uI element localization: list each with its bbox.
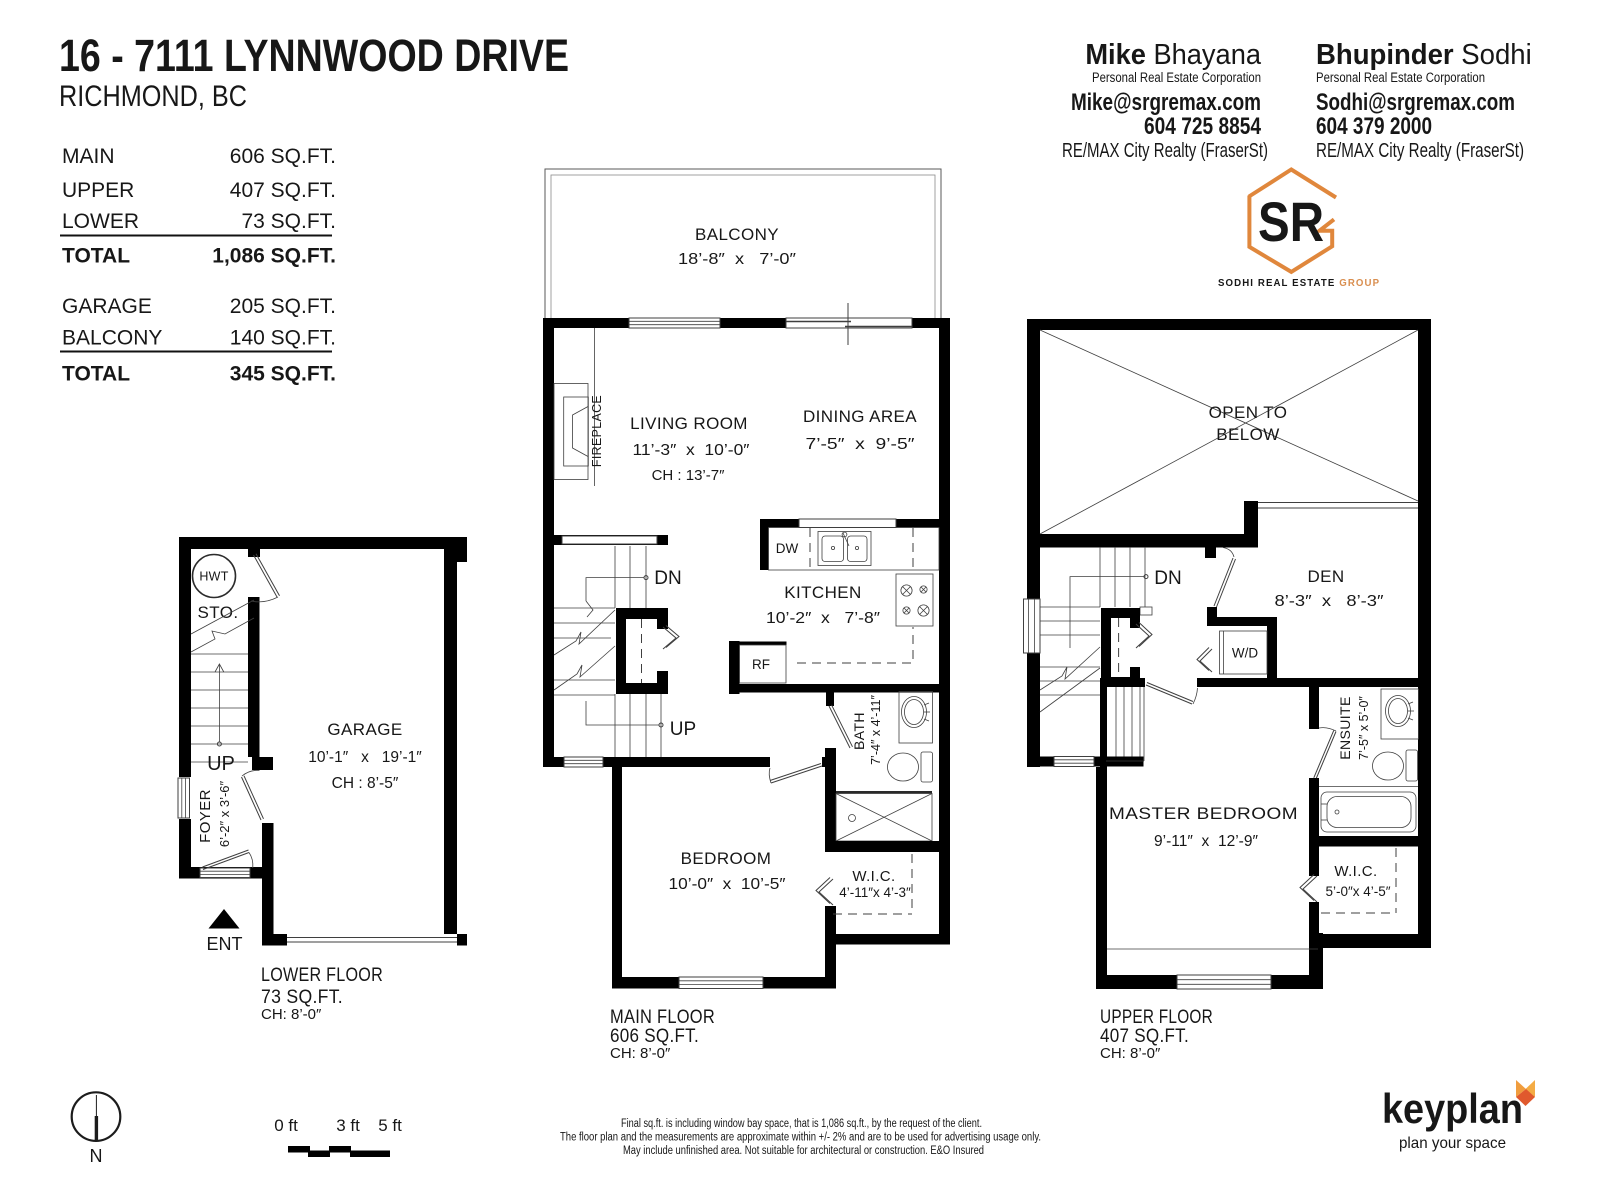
svg-text:RF: RF bbox=[752, 657, 770, 672]
svg-text:10’-2″ x 7’-8″: 10’-2″ x 7’-8″ bbox=[766, 610, 881, 627]
svg-text:DN: DN bbox=[654, 568, 681, 589]
svg-text:11’-3″ x 10’-0″: 11’-3″ x 10’-0″ bbox=[633, 442, 751, 459]
svg-text:5 ft: 5 ft bbox=[378, 1116, 402, 1135]
svg-text:BALCONY: BALCONY bbox=[695, 225, 779, 244]
svg-text:73 SQ.FT.: 73 SQ.FT. bbox=[241, 210, 336, 233]
svg-text:345 SQ.FT.: 345 SQ.FT. bbox=[230, 363, 336, 386]
svg-text:16 - 7111 LYNNWOOD DRIVE: 16 - 7111 LYNNWOOD DRIVE bbox=[59, 30, 569, 81]
svg-text:Mike Bhayana: Mike Bhayana bbox=[1085, 38, 1261, 70]
svg-text:SR: SR bbox=[1258, 190, 1324, 253]
svg-text:UP: UP bbox=[207, 753, 235, 775]
svg-text:FIREPLACE: FIREPLACE bbox=[590, 395, 604, 467]
svg-text:N: N bbox=[90, 1146, 103, 1166]
svg-text:W/D: W/D bbox=[1232, 646, 1258, 661]
svg-text:UPPER: UPPER bbox=[62, 179, 134, 202]
svg-text:ENSUITE: ENSUITE bbox=[1337, 696, 1353, 759]
svg-text:606 SQ.FT.: 606 SQ.FT. bbox=[610, 1026, 699, 1047]
svg-text:TOTAL: TOTAL bbox=[62, 363, 130, 386]
svg-text:CH: 8’-0″: CH: 8’-0″ bbox=[261, 1006, 322, 1023]
svg-text:7’-5″ x 9’-5″: 7’-5″ x 9’-5″ bbox=[806, 436, 916, 453]
svg-text:3 ft: 3 ft bbox=[336, 1116, 360, 1135]
svg-text:plan your space: plan your space bbox=[1399, 1135, 1506, 1152]
svg-text:GARAGE: GARAGE bbox=[327, 720, 402, 739]
svg-text:OPEN TO: OPEN TO bbox=[1209, 403, 1288, 422]
svg-text:MAIN FLOOR: MAIN FLOOR bbox=[610, 1007, 715, 1028]
svg-text:9’-11″ x 12’-9″: 9’-11″ x 12’-9″ bbox=[1154, 833, 1259, 850]
svg-text:BALCONY: BALCONY bbox=[62, 327, 162, 350]
svg-text:GARAGE: GARAGE bbox=[62, 295, 152, 318]
svg-text:May include unfinished area. N: May include unfinished area. Not suitabl… bbox=[623, 1145, 984, 1157]
svg-text:140 SQ.FT.: 140 SQ.FT. bbox=[230, 327, 336, 350]
svg-text:DW: DW bbox=[776, 541, 799, 556]
svg-text:BELOW: BELOW bbox=[1216, 425, 1279, 444]
svg-text:DEN: DEN bbox=[1307, 567, 1344, 586]
svg-text:HWT: HWT bbox=[199, 570, 228, 584]
svg-text:RE/MAX City Realty (FraserSt): RE/MAX City Realty (FraserSt) bbox=[1062, 139, 1268, 162]
svg-text:UP: UP bbox=[670, 719, 696, 740]
svg-text:6’-2″ x 3’-6″: 6’-2″ x 3’-6″ bbox=[217, 780, 232, 847]
svg-text:1,086 SQ.FT.: 1,086 SQ.FT. bbox=[212, 245, 336, 268]
svg-text:LOWER FLOOR: LOWER FLOOR bbox=[261, 965, 383, 986]
svg-text:604 725 8854: 604 725 8854 bbox=[1144, 113, 1262, 140]
svg-text:CH: 8’-0″: CH: 8’-0″ bbox=[1100, 1045, 1161, 1062]
svg-text:SODHI REAL ESTATE GROUP: SODHI REAL ESTATE GROUP bbox=[1218, 278, 1380, 289]
svg-text:205 SQ.FT.: 205 SQ.FT. bbox=[230, 295, 336, 318]
svg-text:MAIN: MAIN bbox=[62, 145, 115, 168]
svg-text:keyplan: keyplan bbox=[1382, 1085, 1523, 1132]
svg-text:18’-8″ x 7’-0″: 18’-8″ x 7’-0″ bbox=[678, 251, 797, 268]
svg-text:CH : 13’-7″: CH : 13’-7″ bbox=[652, 467, 726, 484]
svg-text:CH : 8’-5″: CH : 8’-5″ bbox=[332, 775, 399, 792]
svg-text:Final sq.ft. is including wind: Final sq.ft. is including window bay spa… bbox=[621, 1118, 982, 1130]
svg-text:LOWER: LOWER bbox=[62, 210, 139, 233]
svg-text:7’-4″ x 4’-11″: 7’-4″ x 4’-11″ bbox=[869, 695, 883, 765]
svg-text:BEDROOM: BEDROOM bbox=[681, 849, 772, 868]
svg-text:MASTER BEDROOM: MASTER BEDROOM bbox=[1109, 804, 1298, 823]
svg-text:CH: 8’-0″: CH: 8’-0″ bbox=[610, 1045, 671, 1062]
svg-text:FOYER: FOYER bbox=[197, 789, 214, 843]
svg-text:407 SQ.FT.: 407 SQ.FT. bbox=[230, 179, 336, 202]
svg-text:Mike@srgremax.com: Mike@srgremax.com bbox=[1071, 89, 1261, 116]
svg-text:8’-3″ x 8’-3″: 8’-3″ x 8’-3″ bbox=[1275, 593, 1385, 610]
svg-text:Sodhi@srgremax.com: Sodhi@srgremax.com bbox=[1316, 89, 1515, 116]
svg-text:LIVING ROOM: LIVING ROOM bbox=[630, 414, 748, 433]
svg-text:The floor plan and the measure: The floor plan and the measurements are … bbox=[560, 1132, 1041, 1144]
svg-text:ENT: ENT bbox=[207, 934, 243, 954]
svg-text:W.I.C.: W.I.C. bbox=[852, 868, 895, 885]
svg-text:606 SQ.FT.: 606 SQ.FT. bbox=[230, 145, 336, 168]
svg-text:RICHMOND, BC: RICHMOND, BC bbox=[59, 80, 247, 113]
svg-text:10’-0″ x 10’-5″: 10’-0″ x 10’-5″ bbox=[669, 876, 787, 893]
svg-text:604 379 2000: 604 379 2000 bbox=[1316, 113, 1432, 140]
svg-text:10’-1″ x 19’-1″: 10’-1″ x 19’-1″ bbox=[308, 749, 422, 766]
svg-text:UPPER FLOOR: UPPER FLOOR bbox=[1100, 1007, 1213, 1028]
svg-text:4’-11″x 4’-3″: 4’-11″x 4’-3″ bbox=[839, 885, 911, 900]
svg-text:TOTAL: TOTAL bbox=[62, 245, 130, 268]
svg-text:0 ft: 0 ft bbox=[274, 1116, 298, 1135]
svg-text:BATH: BATH bbox=[851, 712, 867, 750]
svg-text:Personal Real Estate Corporati: Personal Real Estate Corporation bbox=[1092, 70, 1261, 85]
svg-text:DINING AREA: DINING AREA bbox=[803, 407, 917, 426]
svg-text:DN: DN bbox=[1154, 568, 1181, 589]
svg-text:RE/MAX City Realty (FraserSt): RE/MAX City Realty (FraserSt) bbox=[1316, 139, 1524, 162]
svg-text:KITCHEN: KITCHEN bbox=[784, 583, 861, 602]
svg-text:73 SQ.FT.: 73 SQ.FT. bbox=[261, 987, 343, 1008]
svg-text:407 SQ.FT.: 407 SQ.FT. bbox=[1100, 1026, 1189, 1047]
svg-text:5’-0″x 4’-5″: 5’-0″x 4’-5″ bbox=[1325, 884, 1390, 899]
svg-text:Personal Real Estate Corporati: Personal Real Estate Corporation bbox=[1316, 70, 1485, 85]
svg-text:Bhupinder Sodhi: Bhupinder Sodhi bbox=[1316, 37, 1532, 70]
svg-text:7’-5″ x 5’-0″: 7’-5″ x 5’-0″ bbox=[1357, 696, 1371, 760]
svg-text:W.I.C.: W.I.C. bbox=[1334, 863, 1377, 880]
